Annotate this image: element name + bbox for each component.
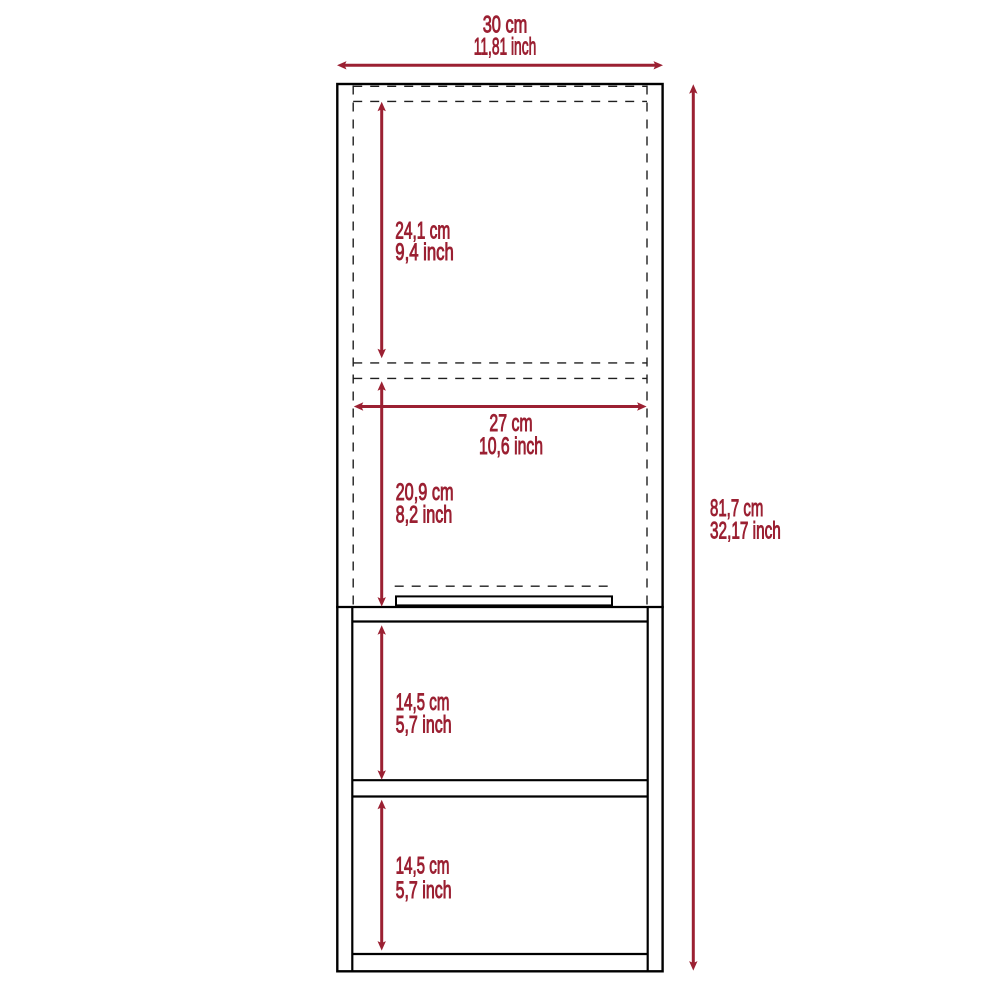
svg-text:8,2 inch: 8,2 inch — [396, 502, 453, 529]
svg-text:14,5 cm: 14,5 cm — [396, 852, 450, 879]
svg-text:9,4 inch: 9,4 inch — [395, 239, 454, 266]
svg-text:32,17 inch: 32,17 inch — [710, 518, 781, 545]
svg-text:5,7 inch: 5,7 inch — [396, 877, 452, 904]
svg-text:5,7 inch: 5,7 inch — [396, 712, 452, 739]
svg-text:10,6 inch: 10,6 inch — [479, 433, 543, 460]
svg-text:11,81 inch: 11,81 inch — [474, 34, 537, 61]
